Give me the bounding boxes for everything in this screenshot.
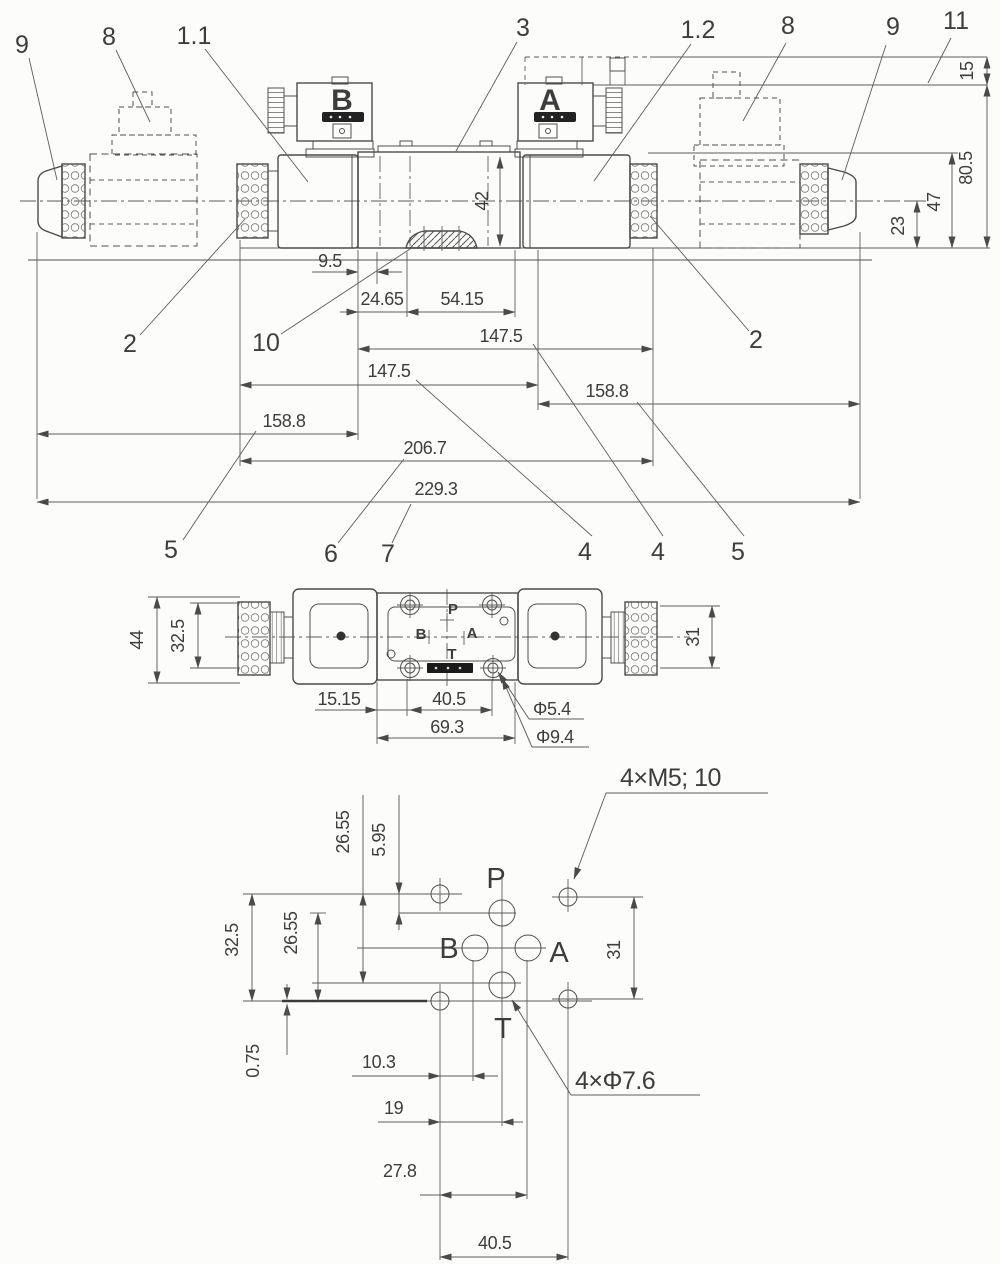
- tv-port-t: T: [447, 646, 456, 663]
- callout-10: 10: [252, 329, 280, 357]
- pattern-port-labels: P B A T: [439, 863, 569, 1045]
- dim-19: 19: [384, 1098, 404, 1118]
- callout-9-right: 9: [886, 13, 900, 41]
- pattern-port-b: B: [439, 933, 458, 965]
- right-end-knurled-ring: [800, 164, 828, 234]
- dim-54-15: 54.15: [440, 289, 483, 309]
- note-4xm5: 4×M5; 10: [620, 764, 721, 792]
- callout-4-left: 4: [578, 538, 592, 566]
- tv-port-b: B: [416, 626, 427, 643]
- dim-206-7: 206.7: [403, 438, 446, 458]
- callout-5-right: 5: [731, 538, 745, 566]
- tv-left-knurl: [238, 602, 270, 675]
- callout-9-left: 9: [15, 31, 29, 59]
- left-knurled-ring: [237, 164, 268, 238]
- pattern-port-t: T: [494, 1013, 512, 1045]
- dim-147-5-lower: 147.5: [367, 361, 410, 381]
- callout-6: 6: [324, 540, 338, 568]
- dim-dia-5-4: Φ5.4: [533, 699, 571, 719]
- dim-47: 47: [924, 192, 944, 212]
- valve-port-mouth: [406, 231, 477, 248]
- valve-dimensional-drawing: B A: [0, 0, 1000, 1264]
- callout-8-right: 8: [781, 12, 795, 40]
- mounting-pattern-view: P B A T 26.55 5.95 32.5 26.55 0.75 10.3: [222, 764, 768, 1260]
- tv-right-coil-dot: [551, 632, 560, 641]
- dim-147-5-upper: 147.5: [479, 326, 522, 346]
- tv-left-coil: [293, 589, 377, 684]
- callout-8-left: 8: [102, 23, 116, 51]
- dim-158-8-left: 158.8: [262, 411, 305, 431]
- right-end-cap: [828, 168, 856, 230]
- callout-5-left: 5: [164, 536, 178, 564]
- left-end-cap: [38, 164, 85, 238]
- right-phantom-solenoid: [694, 72, 800, 248]
- callout-1-2: 1.2: [681, 16, 716, 44]
- right-knurled-ring: [630, 164, 657, 238]
- dim-24-65: 24.65: [360, 289, 403, 309]
- dim-5-95: 5.95: [369, 823, 389, 857]
- dim-44: 44: [127, 630, 147, 650]
- dim-40-5-pattern: 40.5: [478, 1233, 512, 1253]
- connector-b: B: [268, 77, 374, 157]
- pattern-port-p: P: [486, 863, 505, 895]
- left-phantom-solenoid: [90, 92, 197, 246]
- callout-3: 3: [516, 14, 530, 42]
- callout-2-left: 2: [123, 330, 137, 358]
- tv-right-collar: [602, 617, 611, 658]
- tv-nameplate: [427, 663, 473, 673]
- front-dimensions: 9.5 24.65 54.15 147.5 147.5 158.8 158.8 …: [37, 57, 987, 502]
- left-solenoid-body: [278, 155, 358, 248]
- drawing-canvas: B A: [0, 0, 1000, 1264]
- note-4xphi7-6: 4×Φ7.6: [575, 1067, 655, 1095]
- connector-a: A: [515, 77, 622, 157]
- dim-32-5-pattern: 32.5: [222, 923, 242, 957]
- callout-1-1: 1.1: [177, 22, 212, 50]
- dim-0-75: 0.75: [243, 1044, 263, 1078]
- tv-left-coil-dot: [337, 632, 346, 641]
- dim-80-5: 80.5: [956, 151, 976, 185]
- pattern-dimensions: 26.55 5.95 32.5 26.55 0.75 10.3 19 27.8: [222, 764, 768, 1257]
- tv-right-coil: [518, 589, 602, 684]
- front-view: B A: [15, 7, 990, 568]
- dim-32-5-top: 32.5: [168, 619, 188, 653]
- dim-69-3: 69.3: [430, 717, 464, 737]
- dim-dia-9-4: Φ9.4: [536, 727, 574, 747]
- pattern-port-a: A: [549, 937, 569, 969]
- callout-7: 7: [381, 540, 395, 568]
- dim-10-3: 10.3: [362, 1052, 396, 1072]
- right-solenoid-body: [523, 155, 630, 248]
- dim-229-3: 229.3: [414, 479, 457, 499]
- dim-26-55-left: 26.55: [281, 911, 301, 954]
- tv-right-small-knurl: [611, 612, 625, 663]
- dim-9-5: 9.5: [318, 251, 342, 271]
- tv-pin-hole-tr: [500, 617, 508, 625]
- dim-31-pattern: 31: [604, 940, 624, 960]
- dim-40-5-top: 40.5: [432, 689, 466, 709]
- dim-26-55-top: 26.55: [333, 810, 353, 853]
- tv-left-small-knurl: [270, 612, 284, 663]
- dim-27-8: 27.8: [383, 1161, 417, 1181]
- dim-15: 15: [957, 61, 977, 81]
- nameplate-b: [322, 112, 364, 122]
- tv-port-p: P: [448, 601, 458, 618]
- nameplate-a: [534, 112, 576, 122]
- tv-left-collar: [284, 617, 293, 658]
- callout-4-right: 4: [651, 538, 665, 566]
- top-view: P B A T 44 32.5 31: [127, 589, 720, 747]
- dim-31-top: 31: [683, 627, 703, 647]
- dim-15-15: 15.15: [317, 689, 360, 709]
- tv-port-a: A: [467, 625, 478, 642]
- front-callouts: 9 8 1.1 3 1.2 8 9 11 2 10 2 5 6: [15, 7, 969, 568]
- callout-2-right: 2: [749, 326, 763, 354]
- valve-body: [358, 141, 520, 251]
- tv-right-knurl: [625, 602, 657, 675]
- dim-42: 42: [472, 191, 492, 211]
- callout-11: 11: [943, 7, 969, 35]
- phantom-connector-position: [525, 57, 987, 85]
- dim-23: 23: [888, 216, 908, 236]
- dim-158-8-right: 158.8: [585, 381, 628, 401]
